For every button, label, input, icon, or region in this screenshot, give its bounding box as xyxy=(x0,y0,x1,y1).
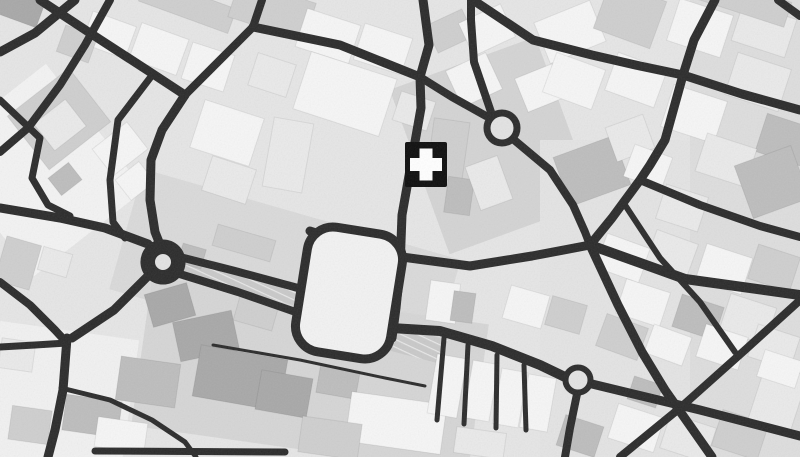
map-canvas[interactable] xyxy=(0,0,800,457)
city-map xyxy=(0,0,800,457)
grain-overlay-light xyxy=(0,0,800,457)
